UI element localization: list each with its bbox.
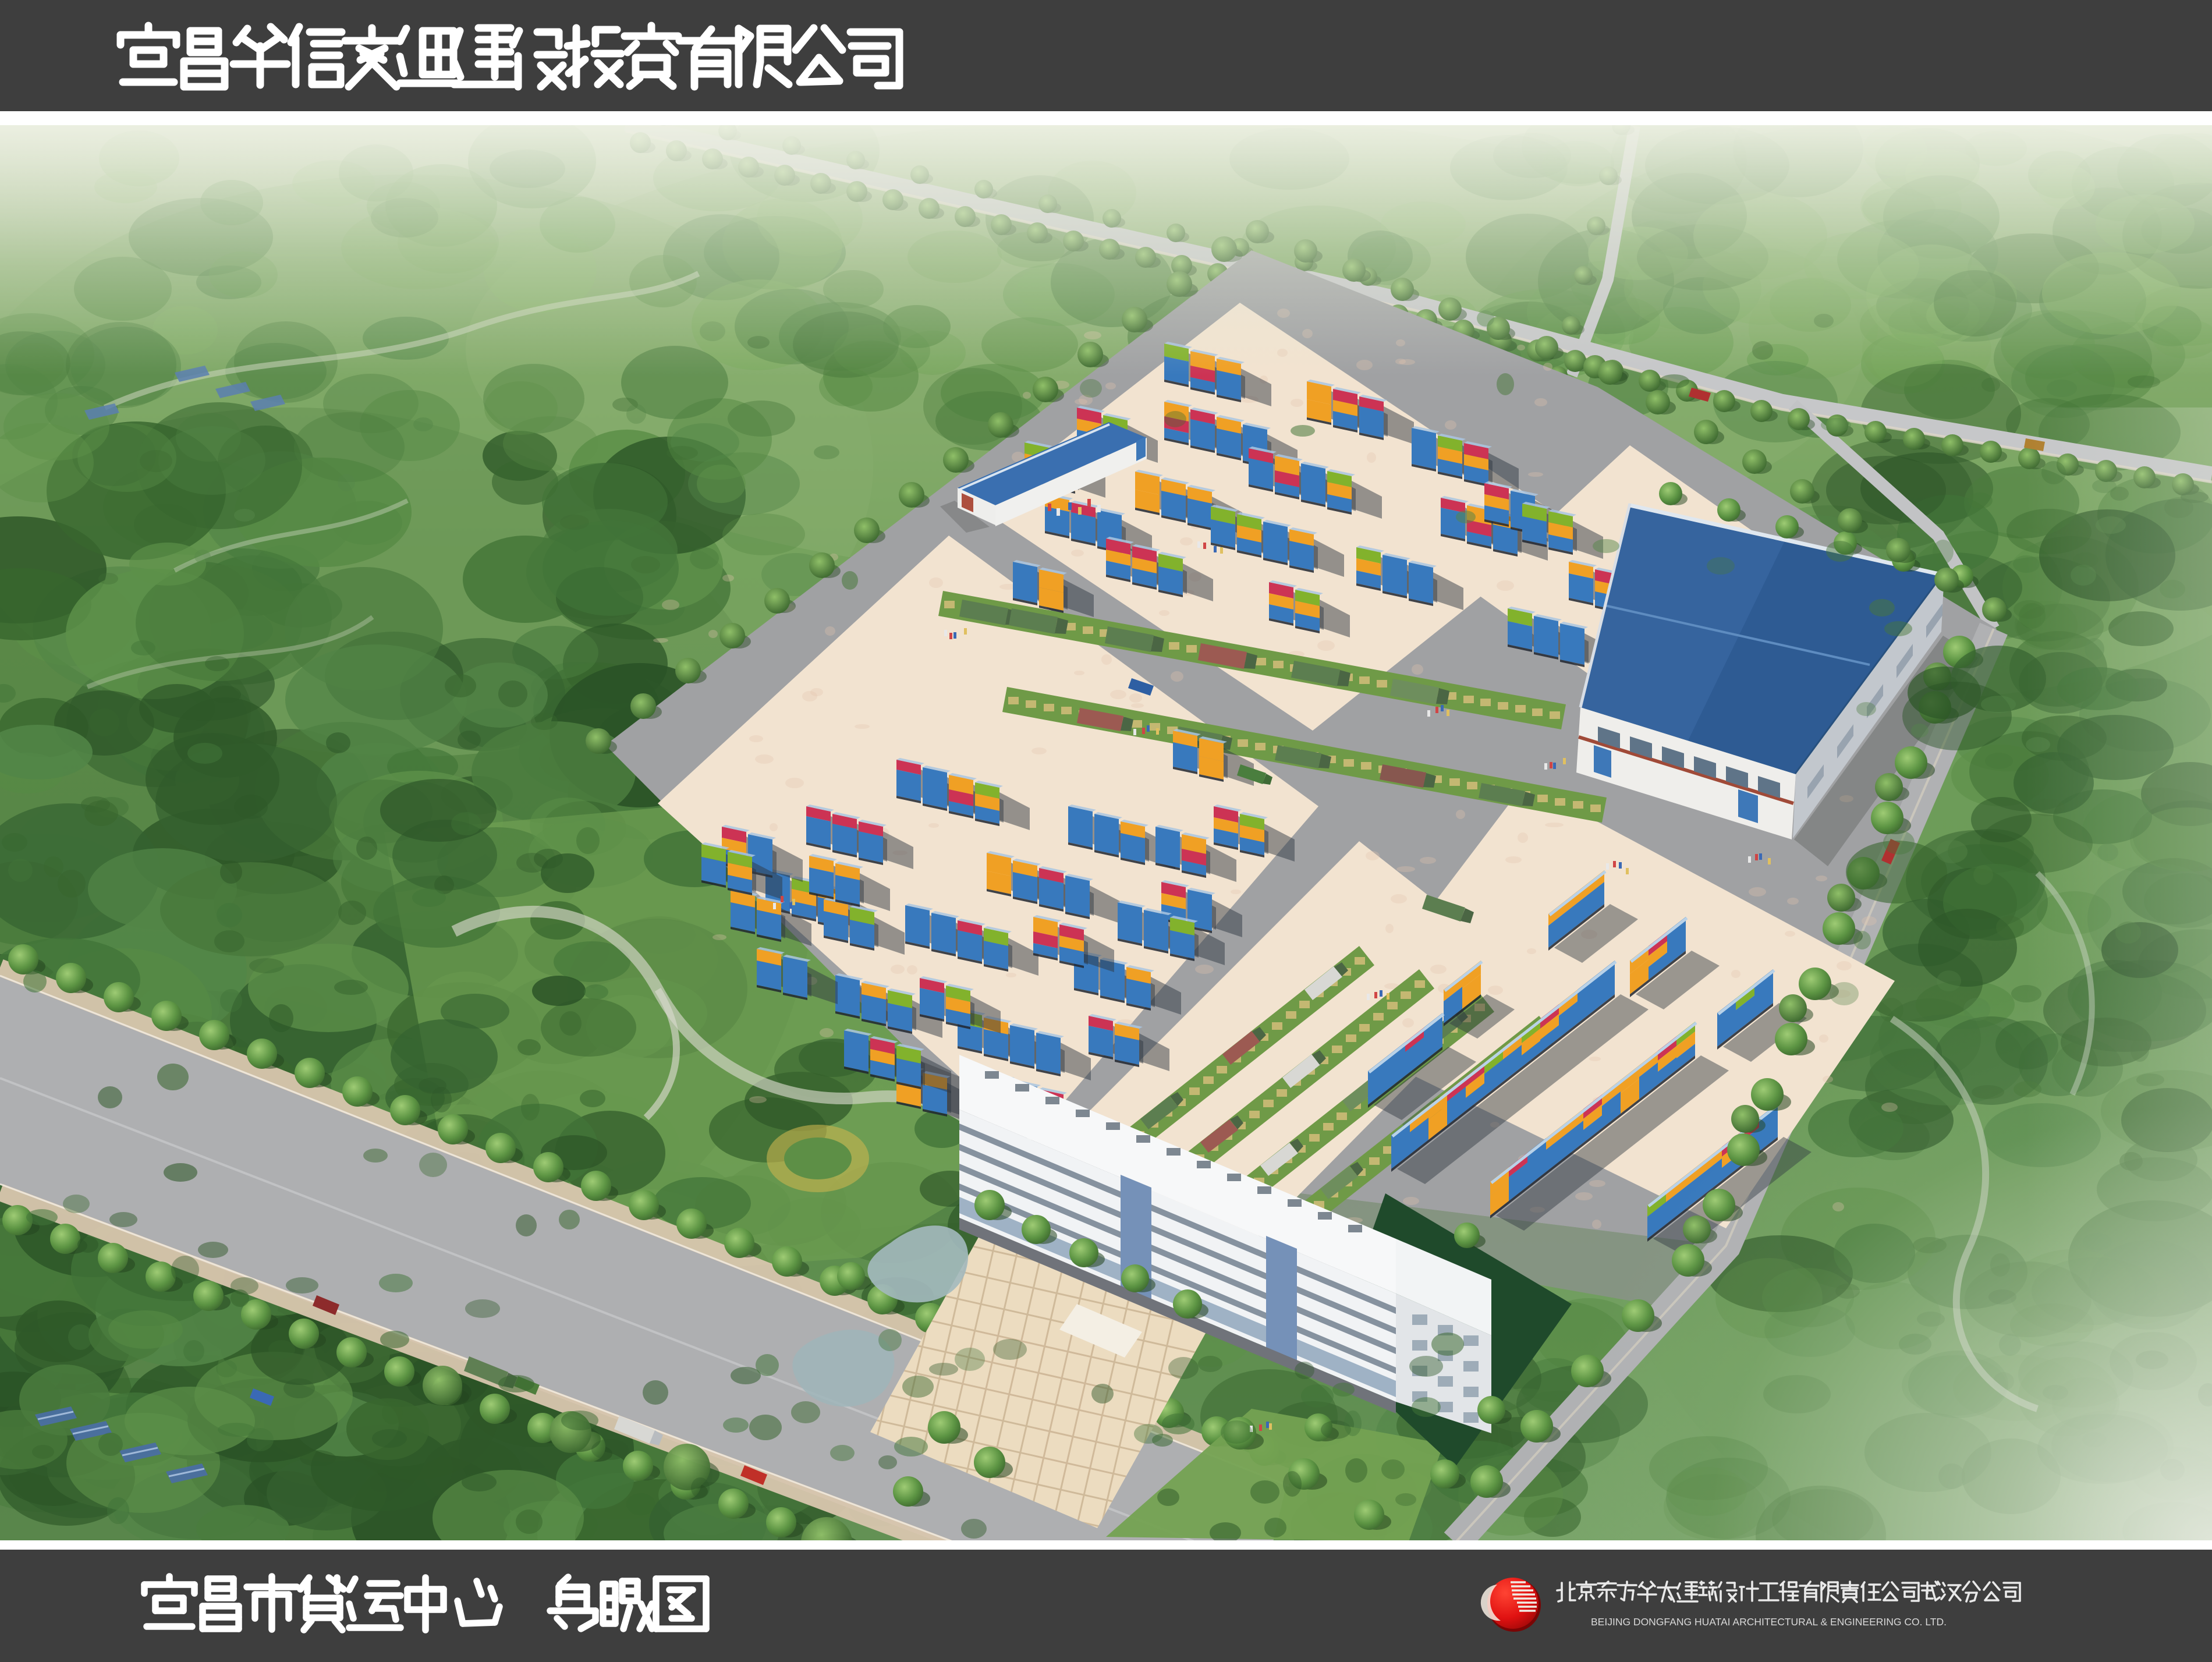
svg-text:BEIJING DONGFANG HUATAI ARCHIT: BEIJING DONGFANG HUATAI ARCHITECTURAL & … <box>1591 1616 1947 1628</box>
